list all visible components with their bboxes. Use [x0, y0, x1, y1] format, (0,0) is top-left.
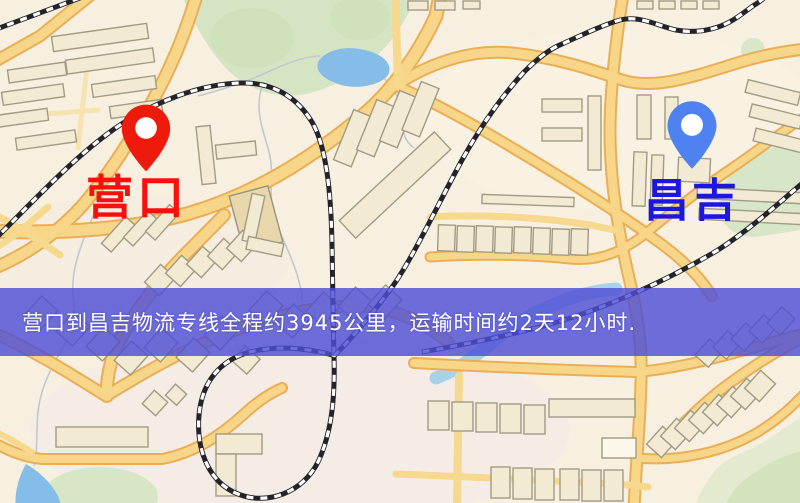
map-screenshot: 营口 昌吉 营口到昌吉物流专线全程约3945公里，运输时间约2天12小时.	[0, 0, 800, 503]
route-info-banner: 营口到昌吉物流专线全程约3945公里，运输时间约2天12小时.	[0, 288, 800, 356]
map-image	[0, 0, 800, 503]
origin-label: 营口	[86, 176, 188, 223]
destination-label: 昌吉	[644, 179, 740, 224]
origin-pin-icon	[118, 103, 174, 173]
route-info-text: 营口到昌吉物流专线全程约3945公里，运输时间约2天12小时.	[0, 307, 636, 337]
destination-pin-icon	[665, 99, 719, 171]
